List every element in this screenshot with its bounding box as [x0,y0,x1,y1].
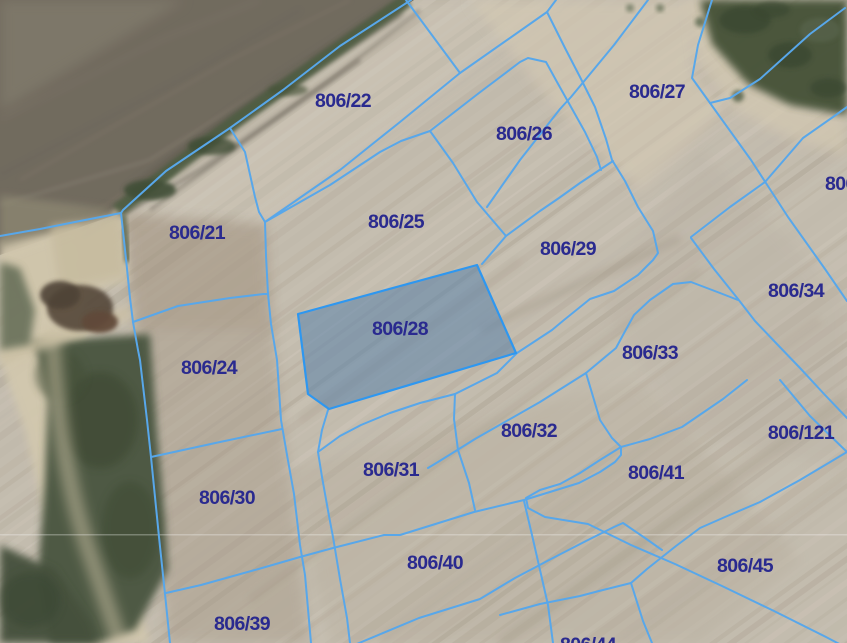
svg-text:806/21: 806/21 [169,222,226,244]
svg-text:806/27: 806/27 [629,81,685,103]
svg-text:806/33: 806/33 [622,342,679,364]
svg-text:806/29: 806/29 [540,238,597,260]
svg-text:806/40: 806/40 [407,552,464,574]
svg-text:806/26: 806/26 [496,123,553,145]
svg-text:806/28: 806/28 [372,318,429,340]
svg-text:806/22: 806/22 [315,90,372,112]
svg-text:806/39: 806/39 [214,613,271,635]
svg-text:806/34: 806/34 [768,280,825,302]
svg-text:806/121: 806/121 [768,422,835,444]
svg-text:806/35: 806/35 [825,173,847,195]
svg-text:806/32: 806/32 [501,420,558,442]
svg-text:806/30: 806/30 [199,487,256,509]
svg-text:806/45: 806/45 [717,555,774,577]
svg-text:806/44: 806/44 [560,634,617,643]
svg-text:806/24: 806/24 [181,357,238,379]
svg-text:806/41: 806/41 [628,462,685,484]
svg-text:806/31: 806/31 [363,459,420,481]
svg-text:806/25: 806/25 [368,211,425,233]
